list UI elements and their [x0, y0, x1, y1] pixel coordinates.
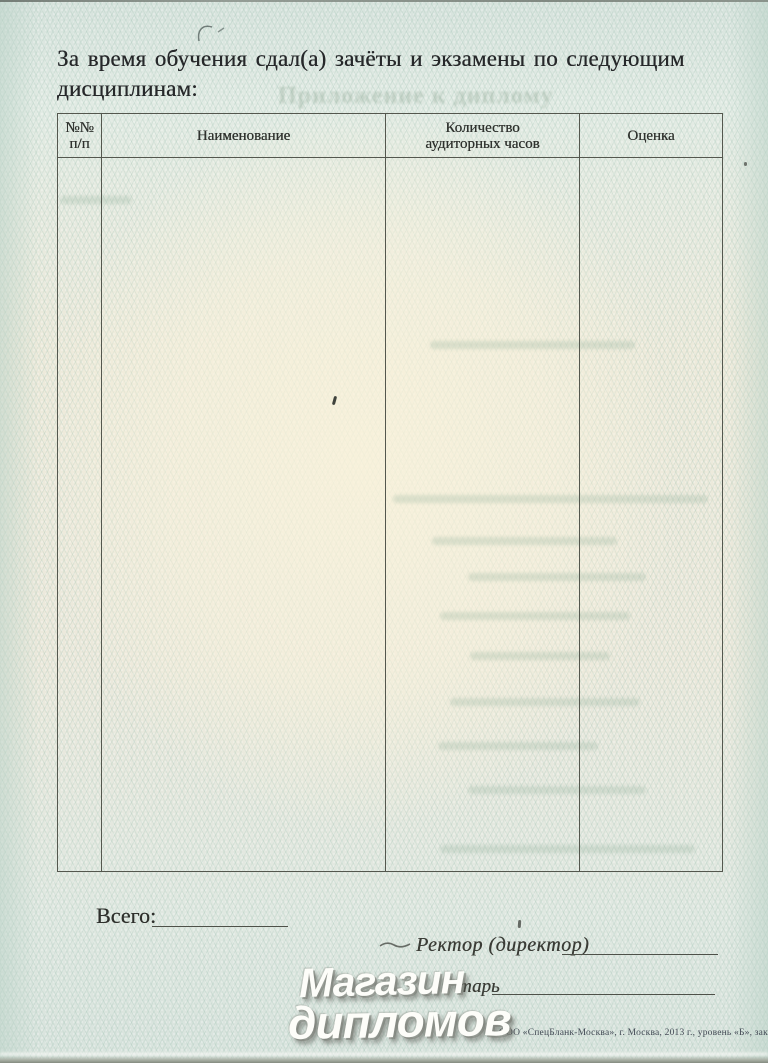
scan-top-edge	[0, 0, 768, 2]
grades-table-body-row	[58, 158, 722, 871]
grades-table: №№ п/п Наименование Количество аудиторны…	[57, 113, 723, 872]
secretary-signature-line	[492, 994, 715, 995]
empty-cell-name	[102, 158, 386, 871]
column-header-number: №№ п/п	[58, 114, 102, 157]
ink-scribble-mark	[188, 22, 228, 46]
rector-signature-line	[562, 954, 718, 955]
column-header-grade: Оценка	[580, 114, 722, 157]
heading-line-2: дисциплинам:	[57, 74, 729, 104]
diploma-supplement-scan: За время обучения сдал(а) зачёты и экзам…	[0, 0, 768, 1063]
printer-imprint: ООО «СпецБланк-Москва», г. Москва, 2013 …	[499, 1028, 768, 1038]
empty-cell-grade	[580, 158, 722, 871]
ink-speck	[518, 920, 521, 928]
ink-speck	[744, 162, 747, 166]
total-blank-line	[152, 926, 288, 927]
grades-table-header-row: №№ п/п Наименование Количество аудиторны…	[58, 114, 722, 158]
watermark-line-2: дипломов	[288, 996, 511, 1046]
column-header-hours: Количество аудиторных часов	[386, 114, 580, 157]
total-label: Всего:	[96, 903, 156, 929]
column-header-name: Наименование	[102, 114, 386, 157]
pen-squiggle-mark	[378, 938, 412, 952]
empty-cell-number	[58, 158, 102, 871]
empty-cell-hours	[386, 158, 580, 871]
page-heading: За время обучения сдал(а) зачёты и экзам…	[57, 44, 729, 104]
scan-bottom-edge	[0, 1056, 768, 1063]
heading-line-1: За время обучения сдал(а) зачёты и экзам…	[57, 44, 729, 74]
